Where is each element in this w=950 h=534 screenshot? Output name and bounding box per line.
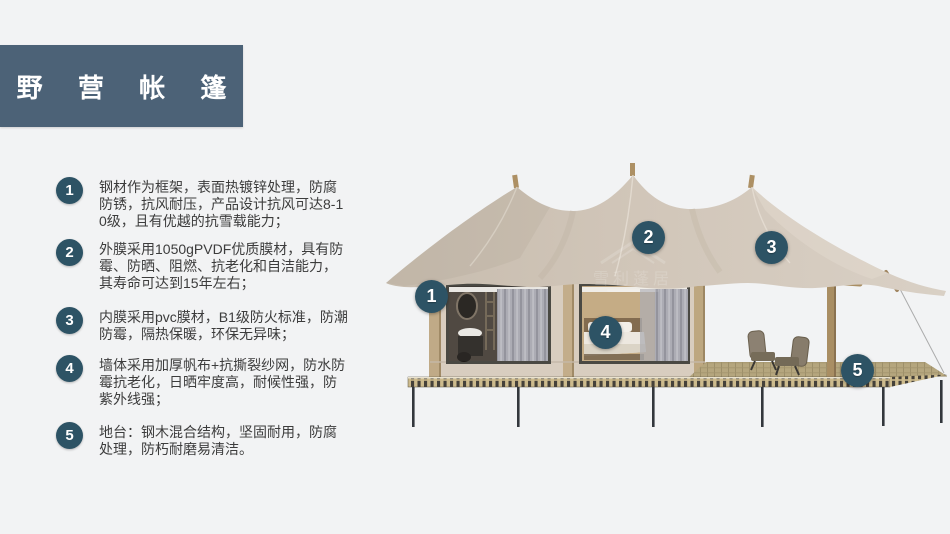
- tent-callout-2: 2: [632, 221, 665, 254]
- feature-number-badge: 1: [56, 177, 83, 204]
- watermark-text: 雪利蓬居: [593, 270, 673, 288]
- feature-number-badge: 2: [56, 239, 83, 266]
- bed: [584, 332, 646, 356]
- page-title-text: 野 营 帐 篷: [3, 68, 241, 105]
- curtain: [655, 289, 688, 361]
- tent-callout-5: 5: [841, 354, 874, 387]
- feature-item: 2外膜采用1050gPVDF优质膜材，具有防霉、防晒、阻燃、抗老化和自洁能力，其…: [56, 239, 386, 292]
- feature-text: 外膜采用1050gPVDF优质膜材，具有防霉、防晒、阻燃、抗老化和自洁能力，其寿…: [99, 239, 349, 292]
- page-title: 野 营 帐 篷: [0, 45, 243, 127]
- left-window: [446, 283, 551, 364]
- pillow: [612, 322, 632, 332]
- headboard: [584, 318, 642, 332]
- feature-number-badge: 3: [56, 307, 83, 334]
- tent-callout-4: 4: [589, 316, 622, 349]
- sheer-curtain: [640, 289, 658, 361]
- feature-item: 4墙体采用加厚帆布+抗撕裂纱网，防水防霉抗老化，日晒牢度高，耐候性强，防紫外线强…: [56, 355, 386, 408]
- tent-callout-1: 1: [415, 280, 448, 313]
- feature-text: 钢材作为框架，表面热镀锌处理，防腐防锈，抗风耐压，产品设计抗风可达8-10级，且…: [99, 177, 349, 230]
- guy-line: [900, 289, 944, 373]
- tent-drawing: 雪利蓬居: [378, 158, 950, 448]
- feature-item: 1钢材作为框架，表面热镀锌处理，防腐防锈，抗风耐压，产品设计抗风可达8-10级，…: [56, 177, 386, 230]
- shelf-ladder: [486, 292, 494, 350]
- middle-window: [579, 283, 690, 364]
- sink: [458, 328, 482, 338]
- slide: 野 营 帐 篷 1钢材作为框架，表面热镀锌处理，防腐防锈，抗风耐压，产品设计抗风…: [0, 0, 950, 534]
- tent-canopy: [386, 175, 946, 296]
- mirror: [457, 293, 477, 319]
- tent-callout-3: 3: [755, 231, 788, 264]
- tent-pole-tips: [512, 163, 755, 188]
- feature-number-badge: 5: [56, 422, 83, 449]
- feature-text: 墙体采用加厚帆布+抗撕裂纱网，防水防霉抗老化，日晒牢度高，耐候性强，防紫外线强；: [99, 355, 349, 408]
- feature-text: 内膜采用pvc膜材，B1级防火标准，防潮防霉，隔热保暖，环保无异味；: [99, 307, 349, 343]
- feature-item: 3内膜采用pvc膜材，B1级防火标准，防潮防霉，隔热保暖，环保无异味；: [56, 307, 386, 343]
- tent-cabin: [429, 281, 705, 378]
- curtain: [497, 289, 548, 361]
- deck-platform: [408, 375, 947, 428]
- watermark: 雪利蓬居: [593, 242, 673, 292]
- pillow: [588, 322, 608, 332]
- feature-item: 5地台：钢木混合结构，坚固耐用，防腐处理，防朽耐磨易清洁。: [56, 422, 386, 458]
- feature-text: 地台：钢木混合结构，坚固耐用，防腐处理，防朽耐磨易清洁。: [99, 422, 349, 458]
- deck-legs: [412, 380, 943, 427]
- porch-posts: [803, 272, 944, 378]
- feature-number-badge: 4: [56, 355, 83, 382]
- porch-floor: [688, 362, 947, 378]
- porch-chairs: [748, 330, 810, 375]
